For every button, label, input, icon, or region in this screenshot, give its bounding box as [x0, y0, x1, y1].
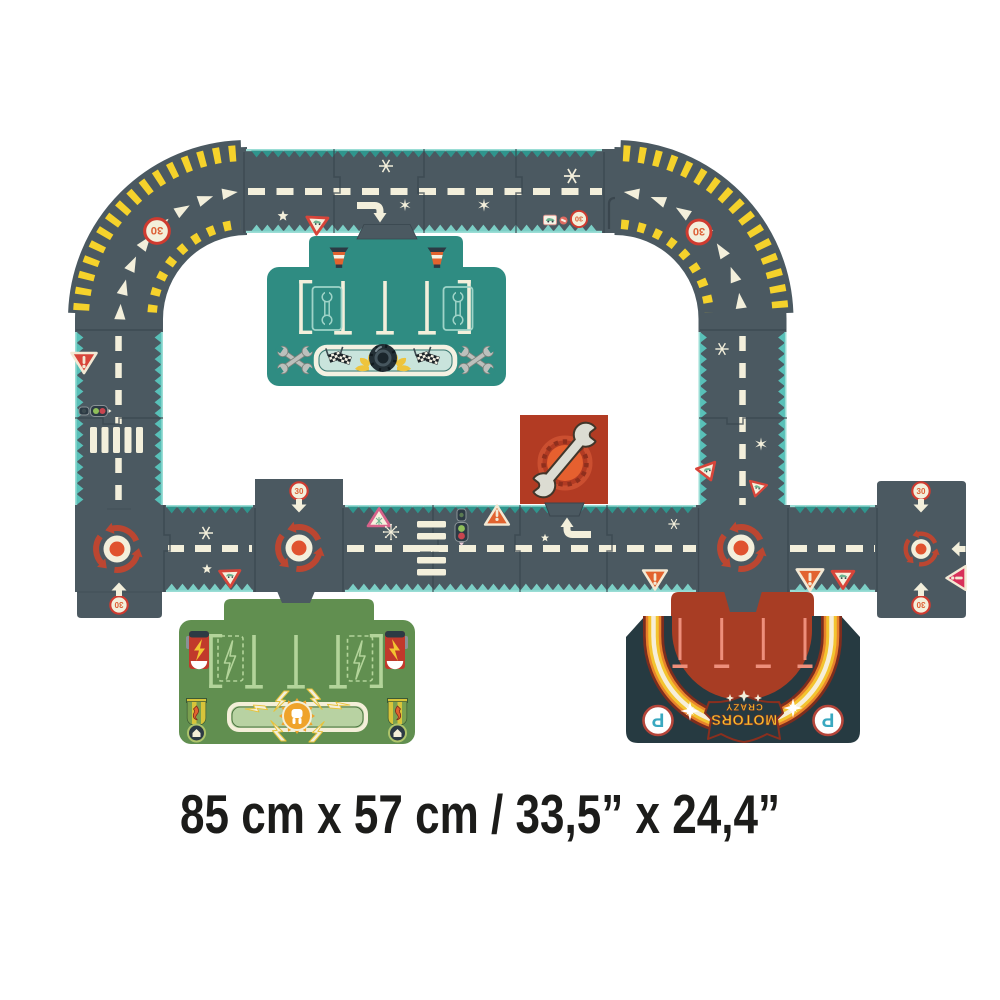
svg-text:85 cm x 57 cm / 33,5” x 24,4”: 85 cm x 57 cm / 33,5” x 24,4”: [180, 783, 780, 845]
svg-text:P: P: [821, 709, 834, 730]
svg-text:CRAZY: CRAZY: [725, 701, 763, 712]
svg-text:30: 30: [151, 224, 164, 236]
svg-text:MOTORS: MOTORS: [711, 711, 777, 727]
svg-text:30: 30: [917, 487, 926, 496]
svg-text:30: 30: [693, 225, 705, 237]
svg-text:P: P: [651, 709, 664, 730]
svg-text:30: 30: [114, 600, 123, 609]
svg-text:30: 30: [575, 214, 583, 223]
svg-text:30: 30: [916, 600, 925, 609]
svg-text:30: 30: [295, 487, 304, 496]
